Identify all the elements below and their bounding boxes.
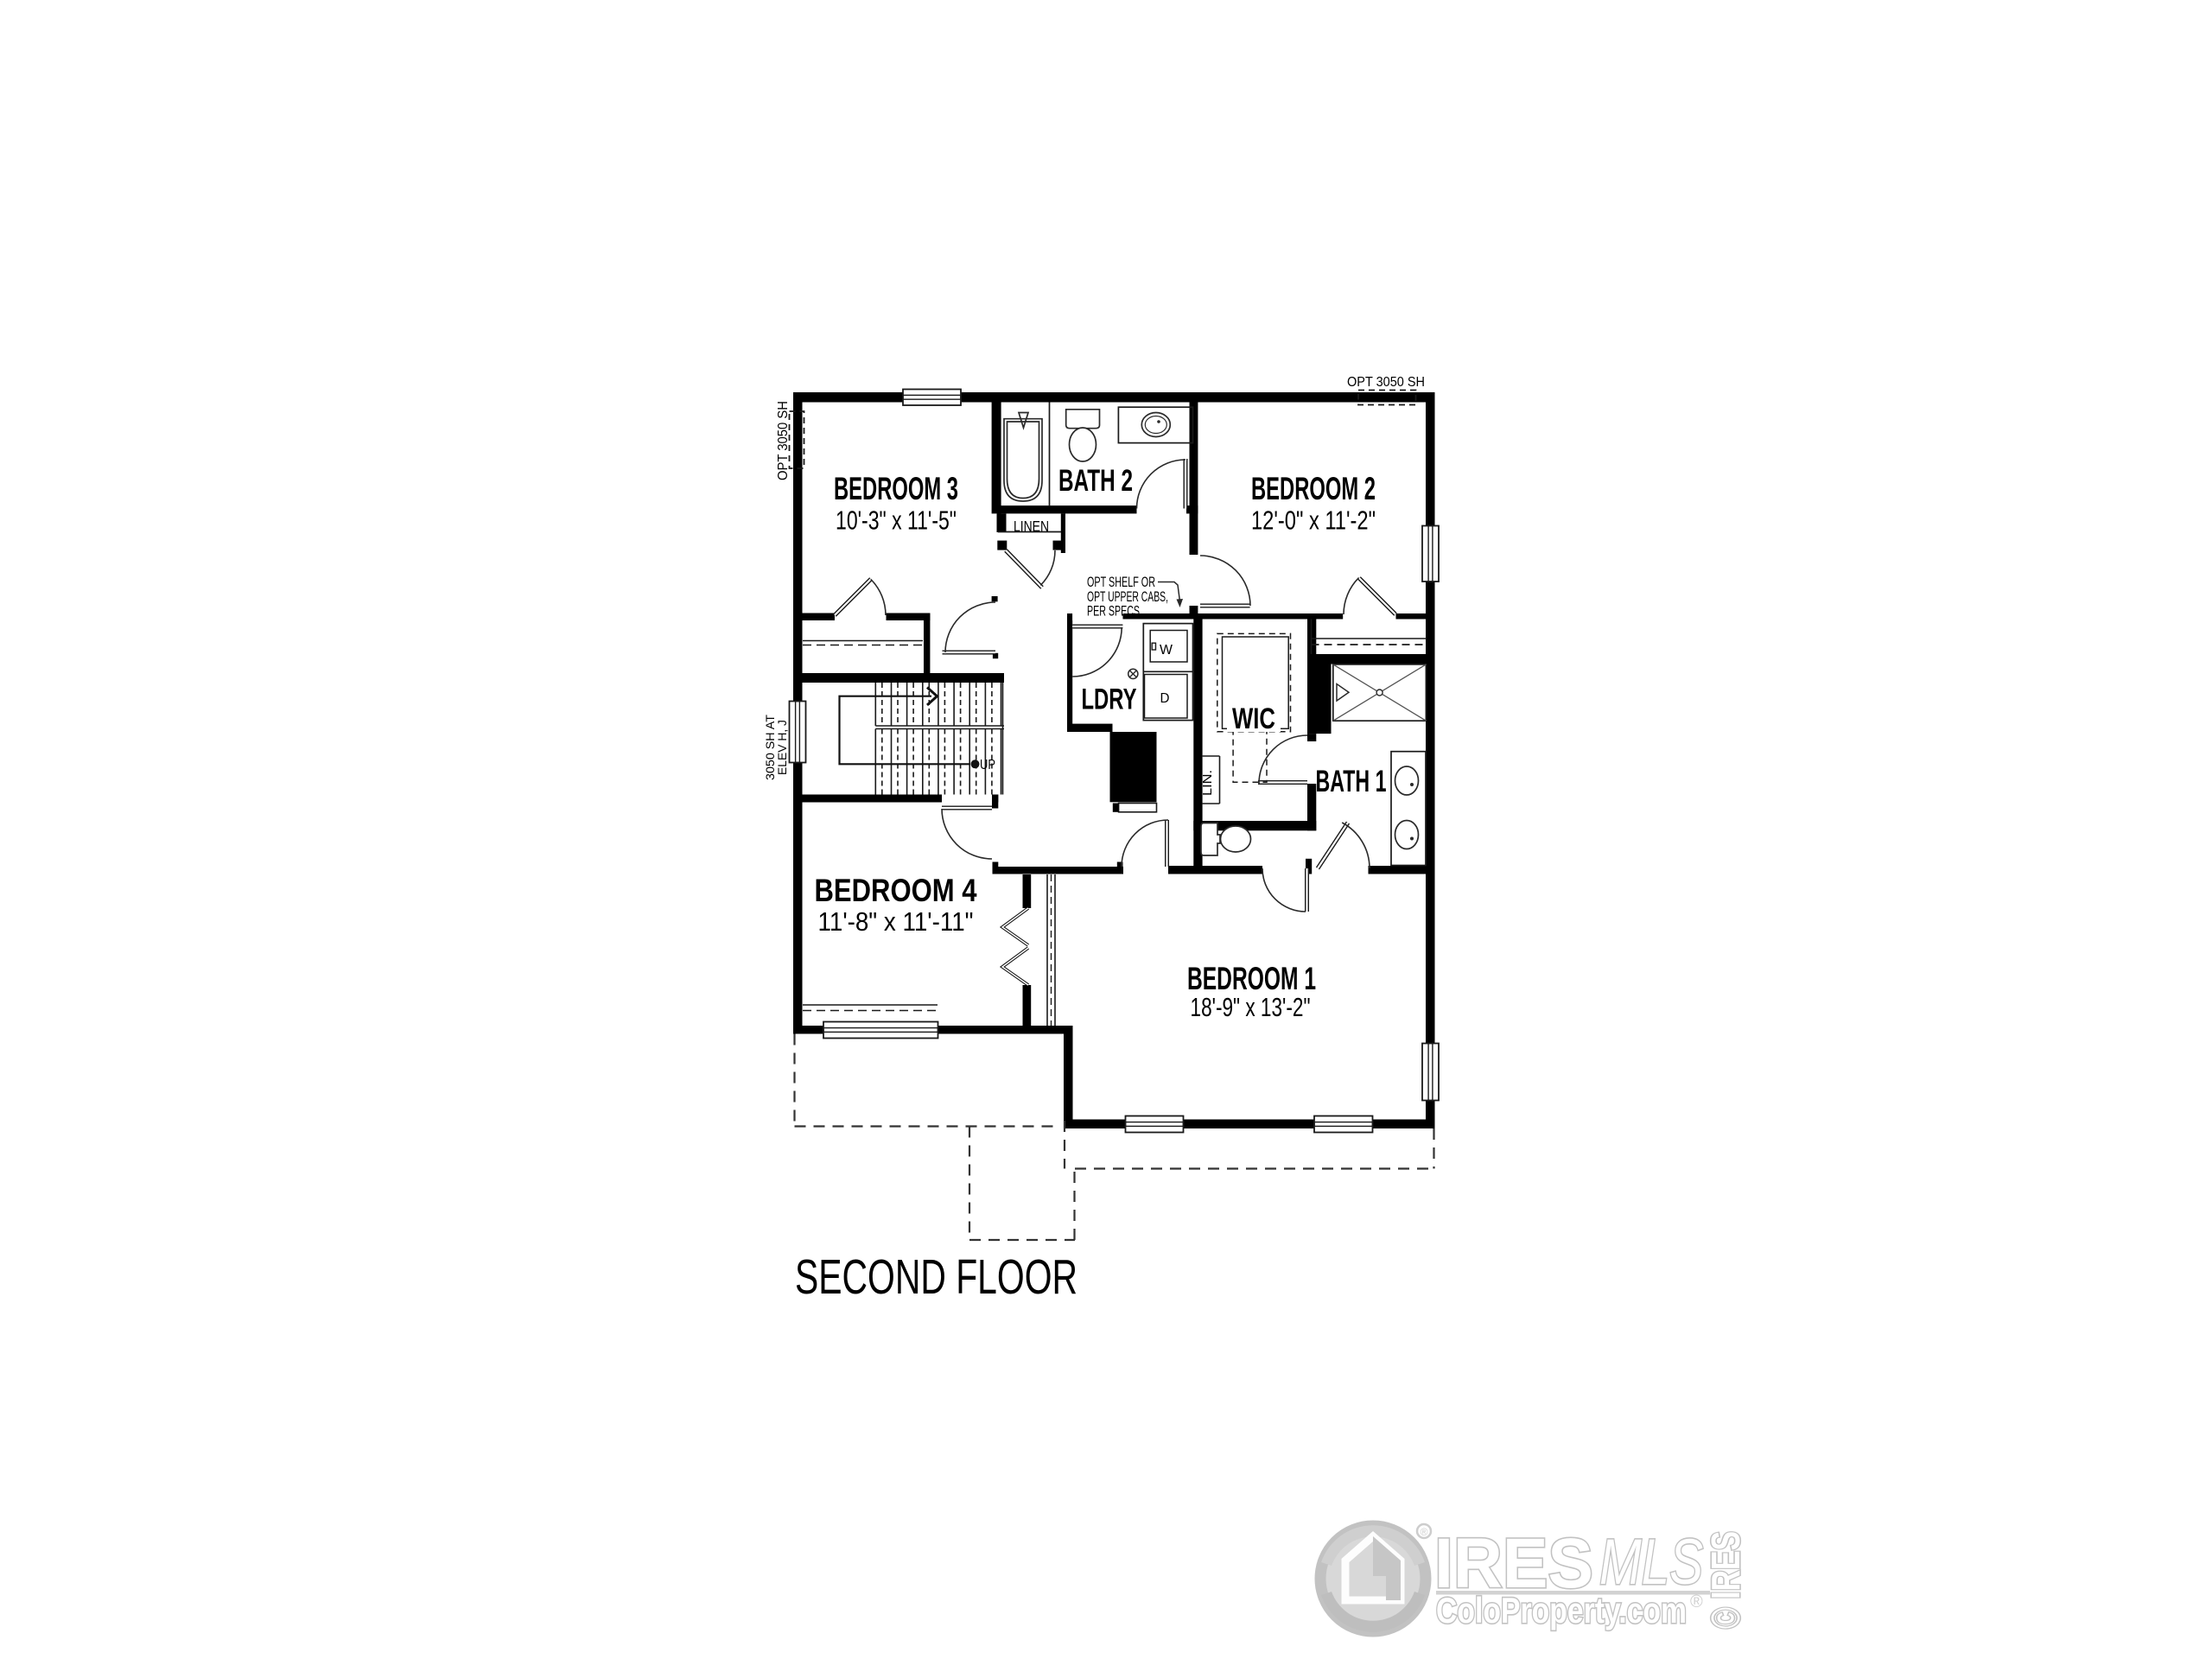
svg-text:W: W — [1160, 643, 1173, 658]
svg-text:PER SPECS: PER SPECS — [1087, 604, 1140, 620]
svg-text:WIC: WIC — [1232, 702, 1275, 735]
svg-text:OPT 3050 SH: OPT 3050 SH — [1347, 375, 1425, 390]
svg-text:BATH 1: BATH 1 — [1316, 765, 1387, 798]
svg-text:11'-8" x 11'-11": 11'-8" x 11'-11" — [818, 906, 974, 937]
svg-text:12'-0" x 11'-2": 12'-0" x 11'-2" — [1251, 505, 1376, 536]
svg-text:OPT SHELF OR: OPT SHELF OR — [1087, 575, 1155, 590]
svg-text:BATH 2: BATH 2 — [1058, 464, 1133, 498]
svg-text:BEDROOM 3: BEDROOM 3 — [834, 471, 958, 506]
svg-text:BEDROOM 2: BEDROOM 2 — [1251, 471, 1376, 506]
svg-text:MLS: MLS — [1599, 1526, 1703, 1598]
svg-text:ColoProperty.com: ColoProperty.com — [1436, 1590, 1687, 1630]
svg-text:10'-3" x 11'-5": 10'-3" x 11'-5" — [836, 505, 957, 536]
svg-text:®: ® — [1690, 1592, 1703, 1611]
svg-text:D: D — [1160, 691, 1170, 706]
svg-text:© IRES: © IRES — [1703, 1531, 1748, 1629]
svg-text:SECOND FLOOR: SECOND FLOOR — [795, 1249, 1077, 1305]
svg-text:LIN.: LIN. — [1201, 770, 1215, 796]
svg-text:OPT 3050 SH: OPT 3050 SH — [776, 401, 791, 480]
svg-text:ELEV H, J: ELEV H, J — [775, 720, 789, 775]
svg-text:18'-9" x 13'-2": 18'-9" x 13'-2" — [1191, 992, 1311, 1022]
svg-text:®: ® — [1421, 1526, 1428, 1538]
svg-text:BEDROOM 1: BEDROOM 1 — [1187, 961, 1316, 996]
svg-text:OPT UPPER CABS,: OPT UPPER CABS, — [1087, 589, 1168, 605]
svg-text:LINEN: LINEN — [1014, 518, 1049, 535]
svg-text:BEDROOM 4: BEDROOM 4 — [815, 873, 977, 908]
svg-text:UP: UP — [980, 758, 995, 772]
svg-text:LDRY: LDRY — [1082, 683, 1137, 716]
